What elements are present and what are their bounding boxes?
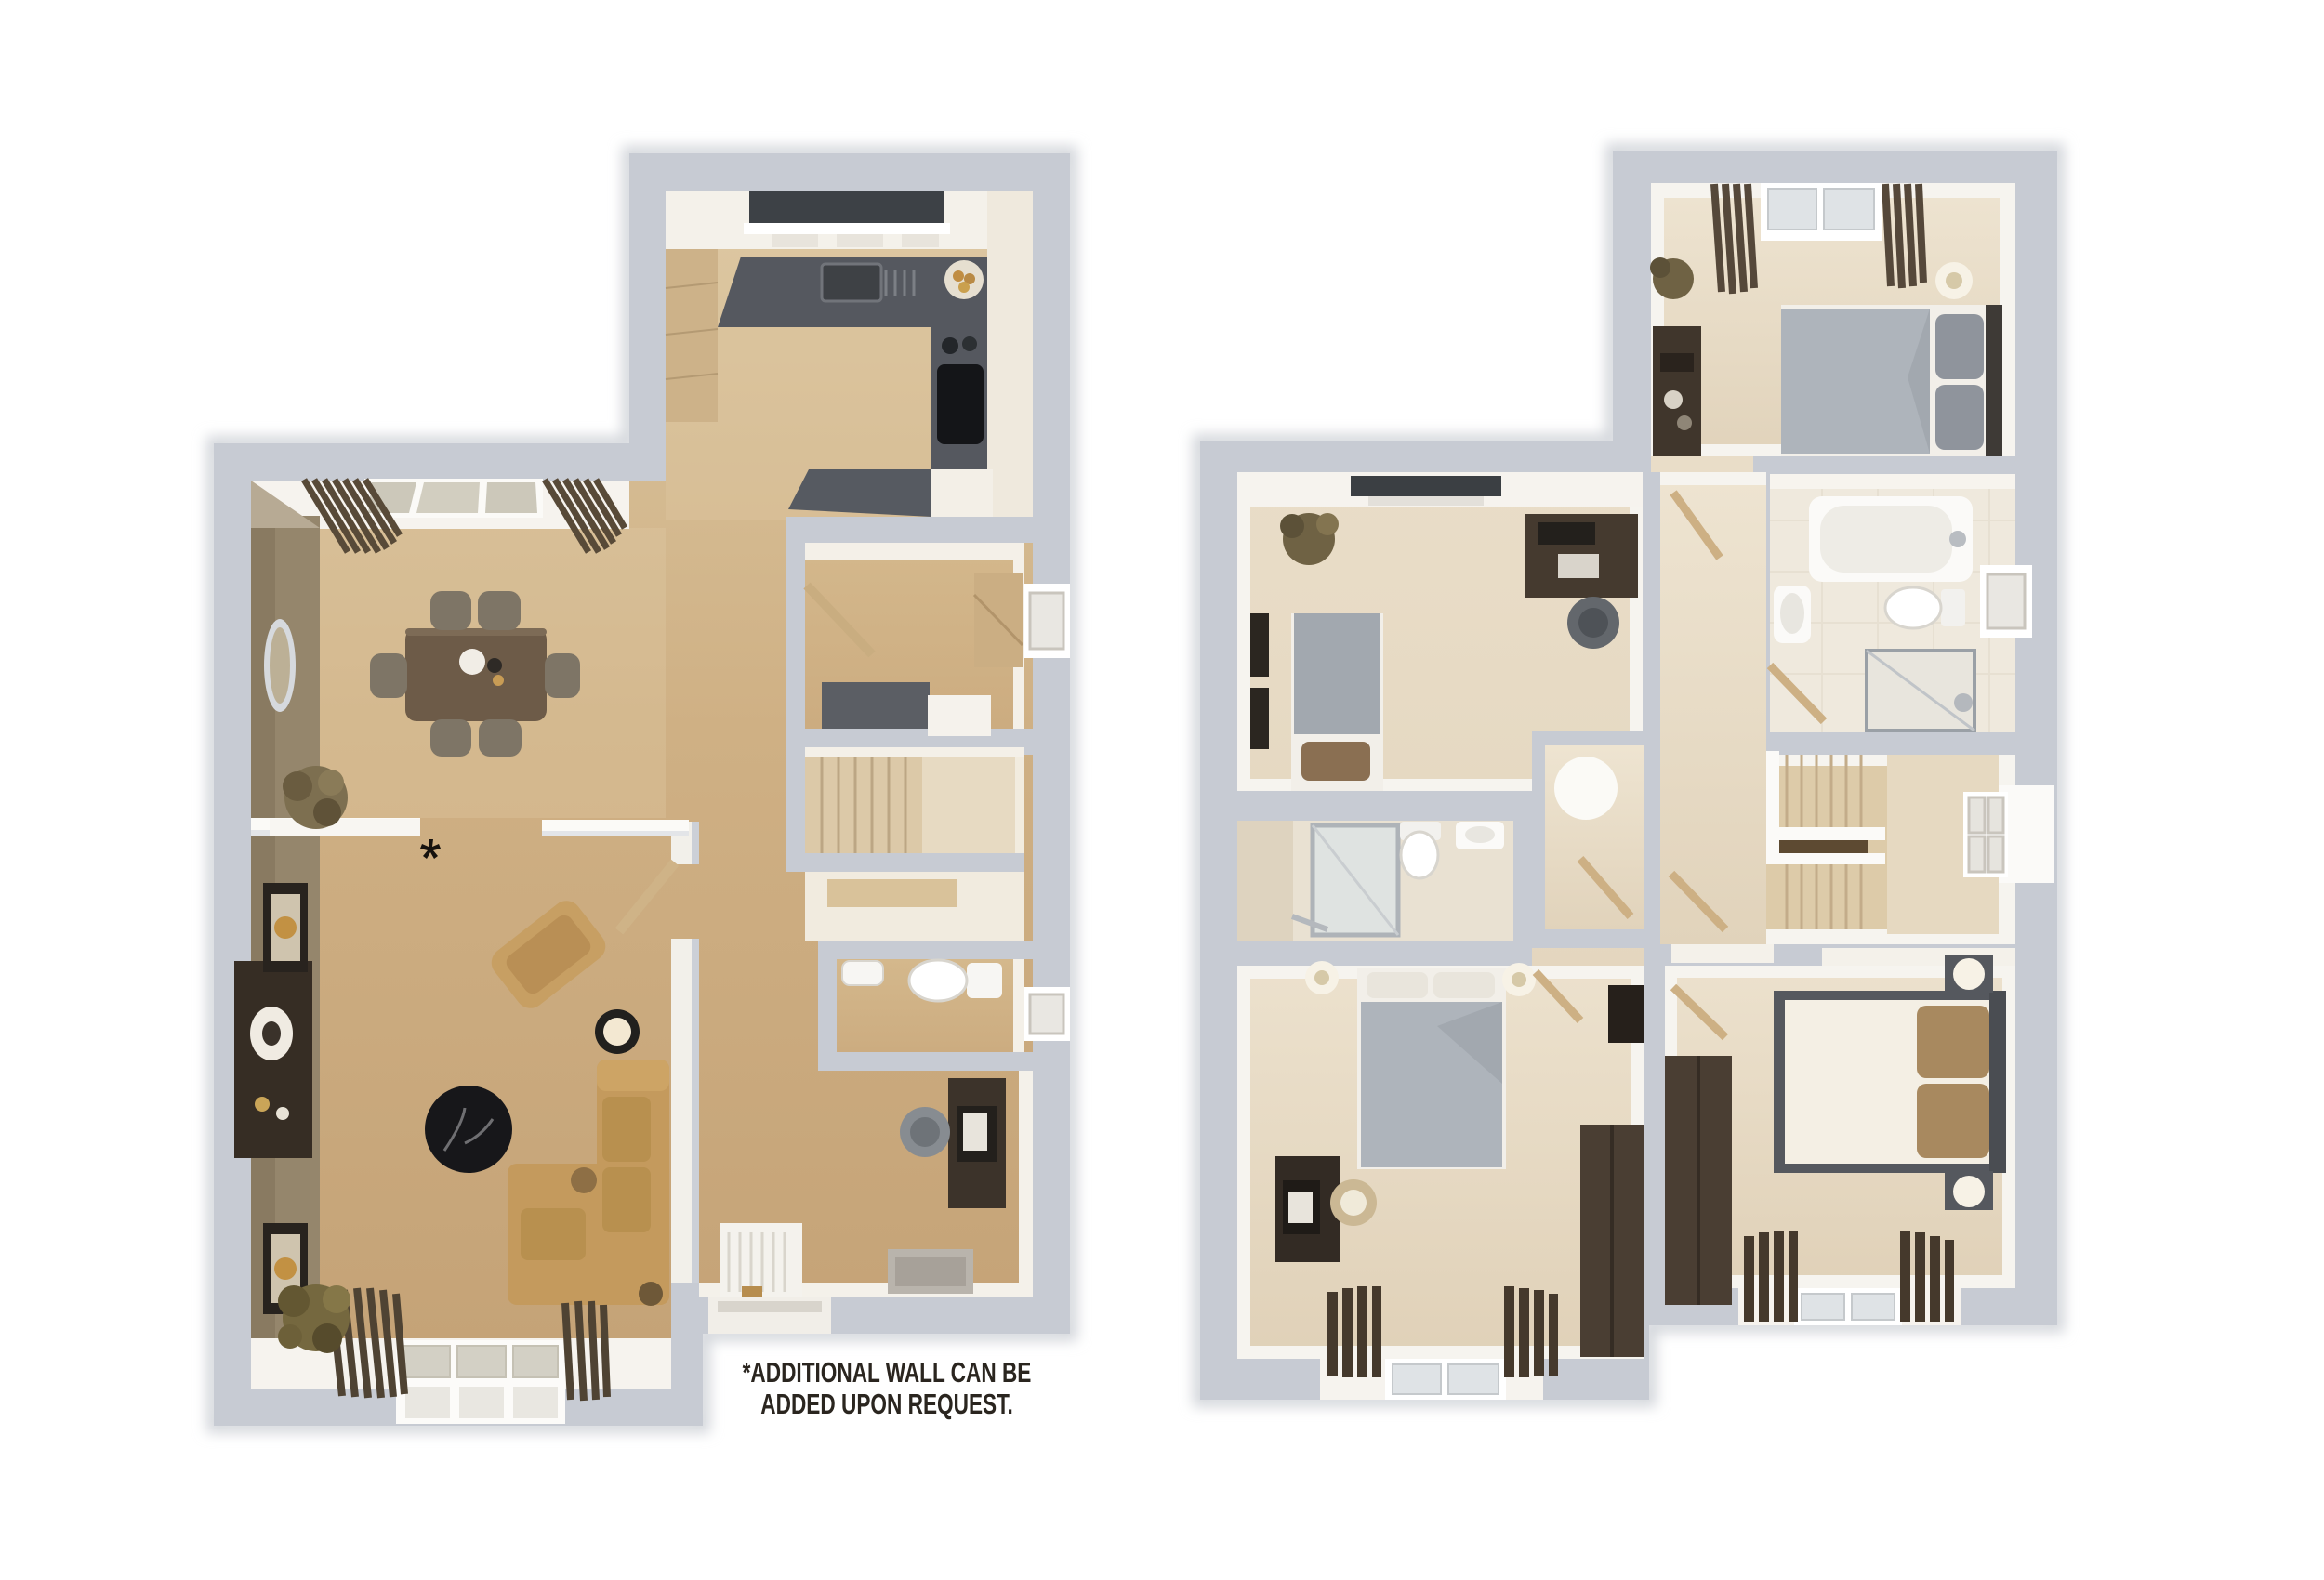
svg-text:*ADDITIONAL WALL CAN BE: *ADDITIONAL WALL CAN BE xyxy=(743,1355,1032,1388)
svg-text:ADDED UPON REQUEST.: ADDED UPON REQUEST. xyxy=(760,1387,1012,1419)
